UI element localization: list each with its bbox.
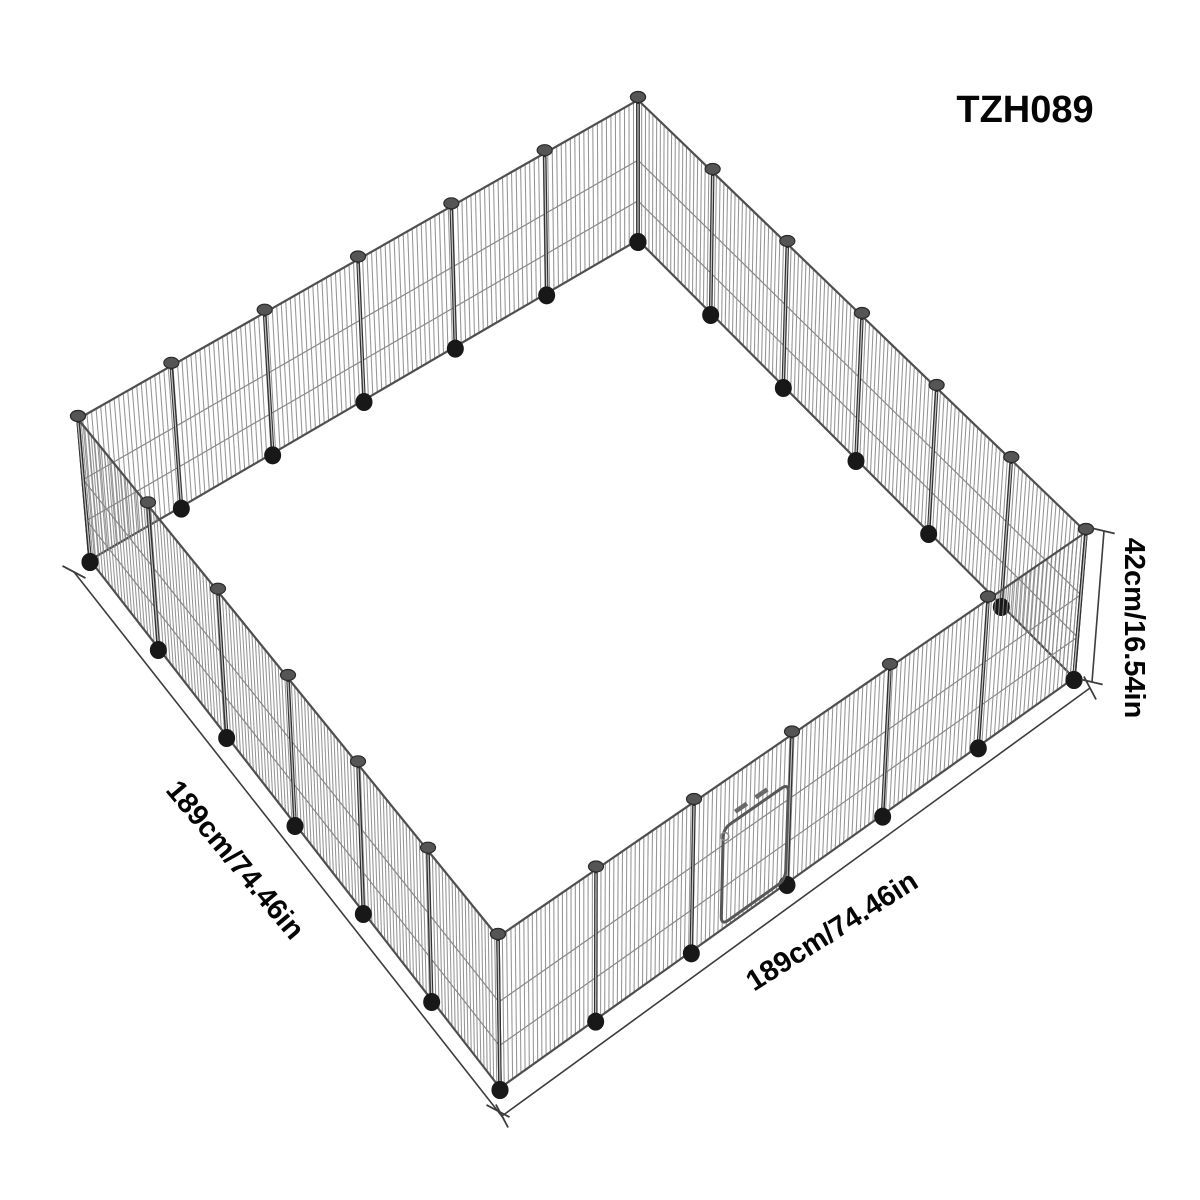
diagram-canvas: TZH089 189cm/74.46in 189cm/74.46in 42cm/…	[0, 0, 1200, 1200]
playpen-diagram: TZH089 189cm/74.46in 189cm/74.46in 42cm/…	[0, 0, 1200, 1200]
wall-front-right	[491, 524, 1094, 1100]
wall-front-left	[71, 411, 509, 1100]
dimension-label-height: 42cm/16.54in	[1118, 538, 1150, 719]
playpen-wireframe	[71, 92, 1094, 1100]
wall-back-left	[71, 92, 647, 572]
model-code-label: TZH089	[956, 89, 1093, 131]
